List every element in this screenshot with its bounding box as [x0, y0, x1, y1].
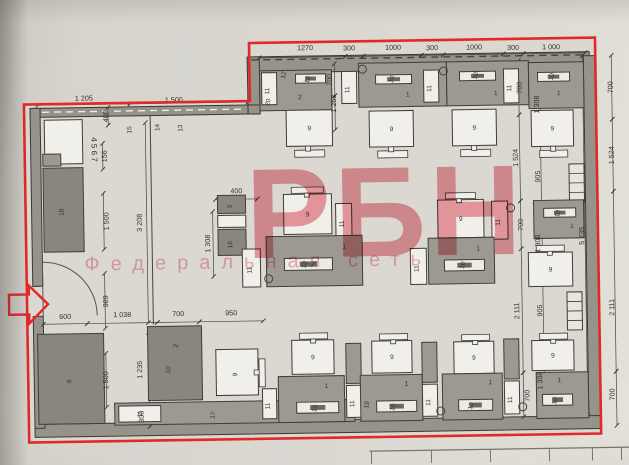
- item-label: 14: [154, 123, 161, 131]
- furniture-number-label: 9: [390, 354, 394, 361]
- furniture-number-label: 9: [472, 125, 476, 132]
- furniture-item: [462, 334, 490, 340]
- furniture-number-label: 1: [488, 379, 492, 386]
- furniture-number-label: 1: [557, 90, 561, 97]
- furniture-number-label: 1: [494, 90, 498, 97]
- dimension-label: 1 308: [203, 235, 212, 253]
- furniture-item: [547, 251, 552, 255]
- dimension-label: 300: [426, 43, 438, 52]
- furniture-item: [218, 215, 246, 227]
- furniture-number-label: 11: [425, 399, 432, 406]
- furniture-number-label: 11: [506, 84, 513, 91]
- furniture-number-label: 9: [307, 125, 311, 132]
- dimension-label: 700: [172, 309, 184, 318]
- dimension-label: 1 235: [135, 361, 144, 379]
- furniture-number-label: 11: [495, 219, 502, 226]
- furniture-item: [291, 187, 323, 194]
- furniture-item: [380, 334, 408, 340]
- furniture-number-label: 11: [507, 396, 514, 403]
- floor-plan-photo: 1821191119911111199111111931611911181711…: [0, 0, 629, 465]
- furniture-item: [346, 343, 362, 383]
- dimension-label: 1 308: [535, 371, 544, 389]
- dimension-label: 700: [515, 82, 524, 94]
- dimension-label: 5 735: [577, 227, 586, 245]
- furniture-item: [43, 154, 61, 166]
- furniture-number-label: 1: [570, 223, 574, 230]
- dimension-label: 1000: [466, 42, 482, 51]
- furniture-number-label: 11: [246, 267, 253, 274]
- furniture-item-1: [360, 374, 423, 421]
- furniture-number-label: 1: [404, 381, 408, 388]
- furniture-item: [391, 340, 396, 344]
- dimension-label: 700: [516, 219, 525, 231]
- dimension-label: 2 111: [607, 299, 616, 316]
- dimension-label: 300: [343, 43, 355, 52]
- furniture-item-1: [278, 376, 345, 423]
- furniture-item: [472, 145, 477, 150]
- furniture-item-9: [216, 349, 259, 396]
- furniture-number-label: 11: [265, 402, 272, 409]
- furniture-number-label: 1: [476, 245, 480, 252]
- furniture-number-label: 1: [557, 377, 561, 384]
- dimension-label: 905: [535, 304, 544, 316]
- furniture-number-label: 9: [459, 216, 463, 223]
- furniture-item-8: [38, 333, 105, 424]
- furniture-item: [551, 339, 556, 343]
- dimension-label: 950: [225, 308, 237, 317]
- furniture-number-label: 11: [413, 265, 420, 272]
- dimension-label: 1 524: [511, 149, 520, 167]
- furniture-number-label: 11: [426, 85, 433, 92]
- furniture-item: [456, 199, 461, 203]
- furniture-number-label: 11: [339, 220, 346, 227]
- floor-plan-drawing: 1821191119911111199111111931611911181711…: [0, 0, 629, 465]
- item-label: 10: [165, 366, 173, 375]
- furniture-number-label: 8: [66, 379, 73, 383]
- item-label: 13: [177, 124, 184, 132]
- furniture-number-label: 16: [227, 241, 234, 249]
- furniture-number-label: 9: [389, 126, 393, 133]
- furniture-item: [306, 146, 311, 151]
- furniture-number-label: 1: [325, 383, 329, 390]
- dimension-label: 1 268: [329, 95, 338, 113]
- furniture-item: [259, 359, 265, 387]
- furniture-item: [254, 370, 259, 375]
- wall: [248, 105, 260, 114]
- dimension-label: 3 208: [135, 214, 144, 232]
- furniture-number-label: 9: [472, 355, 476, 362]
- furniture-number-label: 18: [59, 208, 66, 216]
- furniture-number-label: 9: [311, 354, 315, 361]
- furniture-number-label: 11: [349, 400, 356, 407]
- dimension-label: 700: [324, 74, 333, 86]
- furniture-number-label: 11: [344, 86, 351, 93]
- dimension-label: 989: [101, 295, 110, 307]
- dimension-label: 700: [606, 81, 615, 93]
- plan-sheet: 1821191119911111199111111931611911181711…: [0, 0, 629, 465]
- dimension-label: 1 038: [113, 310, 131, 319]
- furniture-item: [445, 192, 475, 198]
- furniture-item: [540, 333, 568, 339]
- furniture-item: [389, 147, 394, 152]
- dimension-label: 1 308: [532, 95, 541, 113]
- furniture-item-3: [217, 195, 245, 213]
- dimension-label: 1 500: [102, 212, 111, 230]
- item-label: 4 5 6 7: [89, 137, 98, 162]
- dimension-label: 1000: [385, 43, 401, 52]
- item-label: 15: [126, 126, 133, 134]
- furniture-item: [304, 193, 309, 197]
- dimension-label: 1 524: [607, 146, 616, 164]
- furniture-item: [551, 146, 556, 151]
- dimension-label: 1 000: [542, 42, 560, 51]
- furniture-item-1: [442, 373, 503, 420]
- furniture-item: [300, 333, 328, 339]
- furniture-number-label: 2: [298, 94, 302, 101]
- furniture-number-label: 9: [306, 211, 310, 218]
- dimension-label: 1 308: [533, 234, 542, 252]
- dimension-label: 600: [59, 312, 71, 321]
- furniture-number-label: 17: [209, 411, 217, 420]
- dimension-line: [613, 191, 616, 371]
- dimension-label: 400: [230, 186, 242, 195]
- dimension-label: 1270: [297, 43, 313, 52]
- dimension-label: 1 500: [101, 371, 110, 389]
- dimension-label: 700: [522, 390, 531, 402]
- dimension-label: 905: [533, 170, 542, 182]
- furniture-item: [473, 340, 478, 344]
- dimension-label: 156: [100, 150, 109, 162]
- item-label: 19: [363, 400, 371, 409]
- furniture-number-label: 1: [342, 244, 346, 251]
- dimension-label: 400: [101, 110, 110, 122]
- furniture-number-label: 9: [550, 126, 554, 133]
- furniture-item: [147, 326, 202, 401]
- furniture-number-label: 1: [406, 91, 410, 98]
- dimension-label: 300: [507, 43, 519, 52]
- furniture-item: [422, 342, 438, 382]
- bottom-table-border: [369, 447, 629, 451]
- furniture-number-label: 3: [227, 204, 234, 208]
- dimension-label: 700: [607, 388, 616, 400]
- furniture-item: [504, 339, 520, 379]
- furniture-number-label: 9: [549, 267, 553, 274]
- furniture-number-label: 9: [551, 353, 555, 360]
- furniture-number-label: 9: [232, 372, 239, 376]
- furniture-item: [311, 339, 316, 343]
- dimension-label: 2 111: [512, 302, 521, 319]
- dimension-label: 1 205: [75, 93, 93, 102]
- dimension-label: 300: [137, 411, 146, 423]
- wall: [30, 108, 43, 286]
- furniture-number-label: 11: [264, 87, 271, 94]
